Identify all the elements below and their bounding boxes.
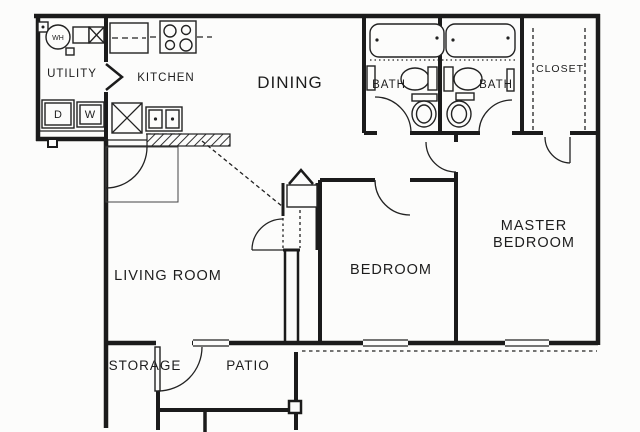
wall-angled-opening <box>106 64 122 90</box>
bath1-label: BATH <box>372 79 406 91</box>
floor-plan-svg: UTILITY KITCHEN DINING BATH BATH CLOSET … <box>0 0 640 432</box>
washer-label: W <box>85 109 96 121</box>
storage-label: STORAGE <box>109 358 182 373</box>
bathtub-2 <box>446 24 515 57</box>
hvac-closet <box>287 185 317 207</box>
closet-fixtures <box>533 28 585 130</box>
bedroom-door <box>375 180 410 215</box>
bath2-vanity-left <box>444 67 453 91</box>
master-label-line1: MASTER <box>501 218 567 234</box>
hall-closet-door <box>252 218 283 250</box>
bedroom-window <box>363 339 408 347</box>
toilet1-icon <box>412 94 437 127</box>
bath1-fixtures <box>367 24 444 127</box>
bath2-label: BATH <box>479 79 513 91</box>
floor-plan-page: UTILITY KITCHEN DINING BATH BATH CLOSET … <box>0 0 640 432</box>
dryer-label: D <box>54 109 62 121</box>
windows <box>104 140 549 347</box>
toilet2-icon <box>447 93 474 127</box>
kitchen-label: KITCHEN <box>137 72 194 84</box>
utility-cabinet <box>73 27 89 43</box>
range-icon <box>160 21 196 53</box>
bathtub-1 <box>370 24 444 57</box>
dining-living-boundary <box>202 141 283 207</box>
water-heater-valve <box>66 48 74 55</box>
bedroom-label: BEDROOM <box>350 262 432 278</box>
patio-label: PATIO <box>226 358 270 373</box>
bath2-fixtures <box>444 24 515 127</box>
center-closets <box>287 170 317 248</box>
kitchen-sink-x <box>112 103 142 133</box>
master-label-line2: BEDROOM <box>493 235 575 251</box>
exterior-tick <box>48 139 57 147</box>
bath2-door <box>479 100 512 133</box>
master-window <box>505 339 549 347</box>
bath2-sink-icon <box>454 68 482 90</box>
hvac-chevron-icon <box>289 170 313 184</box>
patio-post <box>289 401 301 413</box>
closet-label: CLOSET <box>536 63 584 75</box>
living-room-label: LIVING ROOM <box>114 268 222 284</box>
entry-threshold <box>104 140 147 146</box>
living-window <box>193 339 229 347</box>
master-door <box>426 142 456 172</box>
utility-label: UTILITY <box>47 68 97 80</box>
utility-corner-dot <box>42 26 45 29</box>
kitchen-double-sink <box>146 107 182 131</box>
bath1-vanity-right <box>428 67 437 90</box>
water-heater-label: WH <box>52 35 64 42</box>
master-closet-door <box>545 137 570 163</box>
bath1-door <box>375 97 411 133</box>
entry-door <box>106 147 178 202</box>
utility-x-box <box>89 27 104 43</box>
breakfast-bar-counter <box>147 134 230 146</box>
dining-label: DINING <box>257 73 323 92</box>
